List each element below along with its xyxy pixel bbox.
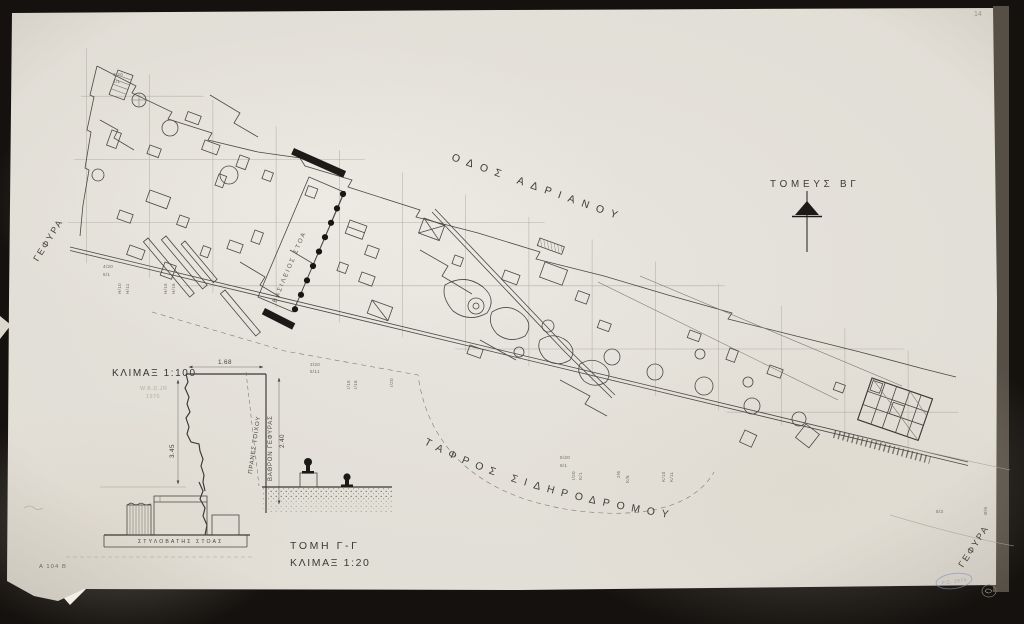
dim-left: 3.45: [169, 444, 176, 458]
stoa-column-dot: [322, 234, 328, 240]
stoa-column-dot: [334, 205, 340, 211]
grid-ref-label: Ι/16: [353, 380, 358, 389]
grid-ref-label: Ι/20: [571, 471, 576, 480]
grid-ref-label: Κ/1: [578, 472, 583, 480]
dim-top: 1.68: [218, 359, 232, 366]
grid-ref-label: Κ/6: [625, 475, 630, 483]
stylobate-label: ΣΤΥΛΟΒΑΤΗΣ ΣΤΟΑΣ: [138, 539, 223, 545]
dim-right: 2.40: [279, 434, 286, 448]
grid-ref-label: 4/1: [113, 79, 120, 84]
grid-ref-label: Ι/15: [346, 380, 351, 389]
grid-ref-label: Η/10: [117, 283, 122, 294]
grid-ref-label: Κ/11: [669, 472, 674, 482]
grid-ref-label: Κ/10: [661, 471, 666, 482]
site-plan-svg: ΒΑΣΙΛΕΙΟΣ ΣΤΟΑ: [0, 0, 1024, 624]
stoa-column-dot: [310, 263, 316, 269]
grid-ref-label: 2/6: [616, 471, 621, 478]
grid-ref-label: Η/15: [163, 283, 168, 294]
section-scale-label: ΚΛΙΜΑΞ 1:20: [290, 557, 370, 569]
grid-ref-label: Θ/5: [983, 507, 988, 515]
stoa-column-dot: [298, 292, 304, 298]
grid-ref-label: 3/20: [310, 362, 320, 367]
drawing-number: Α 104 Β: [39, 564, 67, 570]
grid-ref-label: 5/20: [560, 455, 570, 460]
stoa-column-dot: [316, 249, 322, 255]
grid-ref-label: Η/16: [171, 283, 176, 294]
grid-ref-label: 3/20: [113, 72, 123, 77]
profile-scale-label: ΚΛΙΜΑΞ 1:100: [112, 368, 197, 379]
pencil-page-mark: 14: [974, 11, 982, 18]
grid-ref-label: 6/1: [560, 463, 567, 468]
stoa-column-dot: [292, 306, 298, 312]
stoa-column-dot: [304, 277, 310, 283]
grid-ref-label: 4/20: [103, 264, 113, 269]
scanned-drawing-sheet: ΒΑΣΙΛΕΙΟΣ ΣΤΟΑ: [0, 0, 1024, 624]
grid-ref-label: Η/11: [125, 283, 130, 294]
credit-name: W.B.D.JR: [140, 386, 167, 392]
grid-ref-label: 5/1: [103, 272, 110, 277]
grid-ref-label: 5/3: [936, 509, 943, 514]
grid-ref-label: Ι/20: [389, 378, 394, 387]
stoa-column-dot: [328, 220, 334, 226]
sector-label: ΤΟΜΕΥΣ ΒΓ: [770, 179, 860, 190]
stoa-column-dot: [340, 191, 346, 197]
section-title: ΤΟΜΗ Γ-Γ: [290, 540, 360, 552]
credit-year: 1970: [146, 394, 160, 400]
grid-ref-label: 5/11: [310, 369, 320, 374]
bridge-pier-label: ΒΑΘΡΟΝ ΓΕΦΥΡΑΣ: [268, 415, 274, 481]
